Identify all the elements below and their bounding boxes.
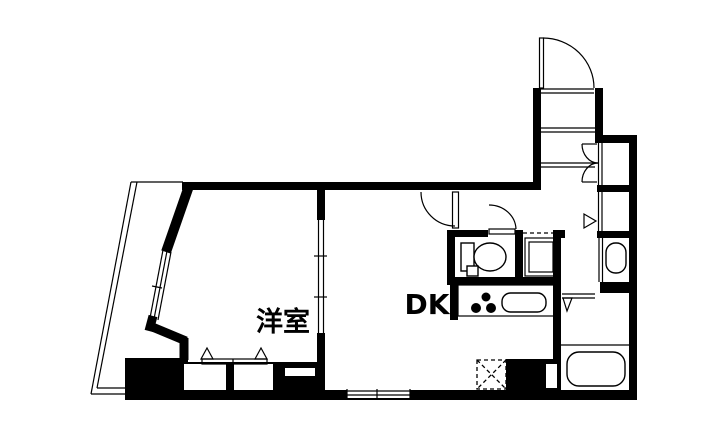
slant-wall bbox=[149, 186, 189, 360]
stove-burner bbox=[471, 303, 481, 313]
pipe-space-slot bbox=[546, 364, 557, 388]
toilet-top-wall bbox=[455, 230, 488, 237]
stove-burner bbox=[482, 293, 491, 302]
toilet-door-leaf bbox=[489, 229, 515, 234]
kitchen-top-wall bbox=[447, 277, 561, 285]
bathtub bbox=[567, 352, 625, 386]
partition-wall-top bbox=[317, 183, 325, 220]
window-vent-triangle bbox=[255, 348, 267, 359]
floor-plan-drawing: 洋室 DK bbox=[0, 0, 716, 443]
toilet-right-wall bbox=[515, 230, 523, 285]
stove-burner bbox=[486, 303, 496, 313]
washbasin bbox=[606, 243, 626, 273]
toilet-bowl bbox=[474, 243, 506, 271]
bathroom bbox=[561, 294, 629, 386]
refrigerator-space bbox=[477, 360, 506, 389]
entrance-door-leaf bbox=[540, 38, 544, 88]
toilet-seat-box bbox=[467, 266, 478, 276]
toilet-door-arc bbox=[489, 205, 516, 229]
entry-right-wall bbox=[595, 88, 603, 143]
dk-label: DK bbox=[405, 288, 451, 321]
south-window bbox=[201, 348, 267, 364]
kitchen-sink bbox=[502, 293, 546, 312]
western-room-label: 洋室 bbox=[256, 306, 310, 338]
top-wall bbox=[182, 182, 535, 190]
dk-door-leaf bbox=[453, 192, 459, 228]
hall-closet-folding-door bbox=[584, 192, 602, 231]
folding-door-triangle bbox=[584, 214, 596, 228]
closet-divider-wall bbox=[597, 185, 629, 192]
south-window-opening bbox=[234, 364, 273, 390]
hall-closet-bifold-door bbox=[582, 143, 602, 185]
bath-door-mark bbox=[563, 298, 572, 311]
window-vent-triangle bbox=[201, 348, 213, 359]
dk-door bbox=[421, 192, 459, 228]
structural-mass bbox=[125, 358, 188, 392]
south-window-opening bbox=[184, 364, 226, 390]
floor-plan: 洋室 DK bbox=[0, 0, 716, 443]
kitchen bbox=[458, 285, 555, 316]
entrance-door-arc bbox=[543, 38, 594, 88]
dk-corner-wall bbox=[506, 359, 553, 390]
wall-slot-window bbox=[285, 368, 315, 376]
sliding-door bbox=[314, 220, 327, 333]
dk-window bbox=[347, 389, 410, 398]
entry-left-wall bbox=[533, 88, 541, 190]
washroom-top-wall bbox=[600, 282, 632, 293]
kitchen-left-wall bbox=[450, 285, 458, 320]
toilet-left-wall bbox=[447, 230, 455, 285]
genkan-step-lines bbox=[541, 128, 595, 167]
walls bbox=[125, 88, 637, 400]
closet-divider-wall bbox=[597, 231, 629, 238]
slant-window bbox=[150, 250, 171, 320]
right-wall bbox=[629, 135, 637, 400]
washbasin-compartment bbox=[599, 238, 626, 282]
toilet-room bbox=[461, 205, 516, 276]
dk-door-arc bbox=[421, 192, 455, 226]
entrance-door bbox=[540, 38, 595, 93]
